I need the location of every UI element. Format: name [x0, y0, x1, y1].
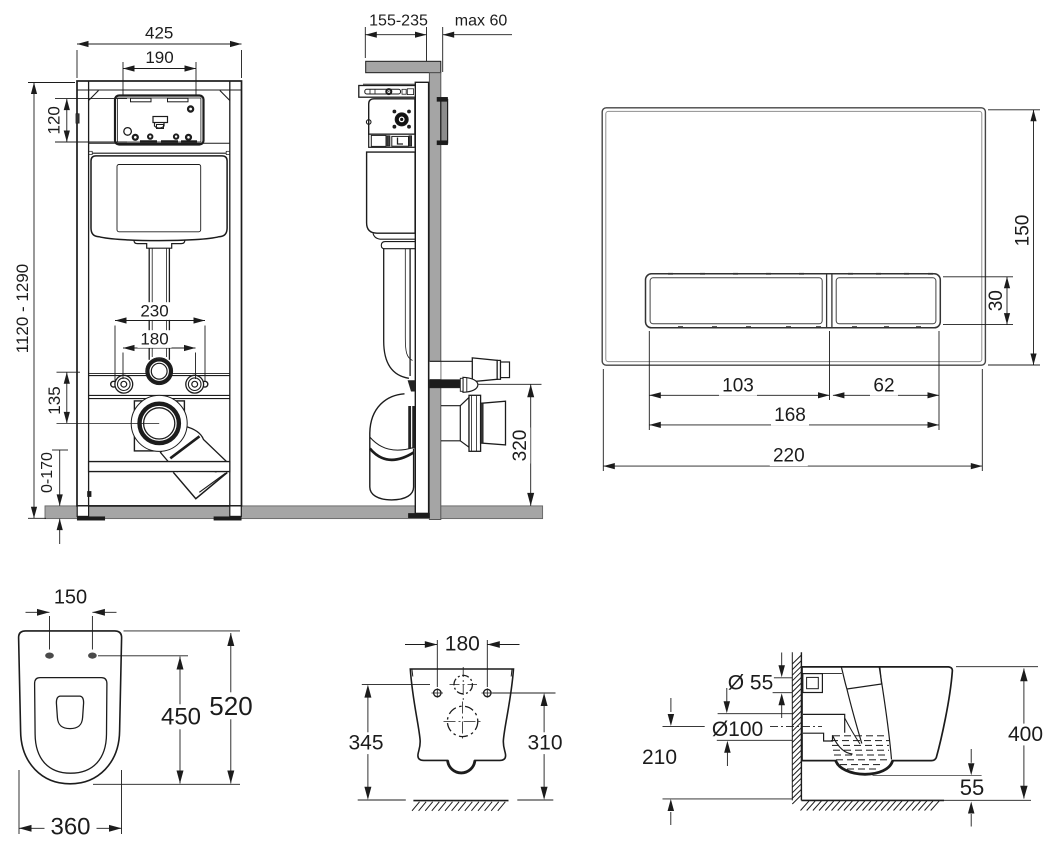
svg-text:210: 210	[642, 746, 677, 769]
svg-text:Ø100: Ø100	[712, 718, 763, 741]
svg-text:120: 120	[45, 106, 64, 134]
svg-text:220: 220	[773, 446, 805, 467]
svg-text:55: 55	[960, 775, 984, 800]
svg-text:180: 180	[140, 330, 168, 349]
svg-text:Ø 55: Ø 55	[728, 671, 774, 694]
svg-text:190: 190	[145, 48, 173, 67]
svg-text:30: 30	[986, 290, 1007, 311]
svg-text:345: 345	[348, 732, 383, 755]
svg-text:310: 310	[527, 732, 562, 755]
svg-text:360: 360	[50, 813, 90, 840]
svg-text:62: 62	[873, 375, 894, 396]
svg-text:400: 400	[1008, 723, 1043, 746]
svg-text:425: 425	[145, 24, 173, 43]
svg-text:168: 168	[774, 405, 806, 426]
svg-text:1120 - 1290: 1120 - 1290	[13, 264, 32, 353]
svg-text:180: 180	[445, 633, 480, 656]
svg-text:max 60: max 60	[455, 13, 508, 30]
svg-text:0-170: 0-170	[39, 452, 56, 493]
svg-text:450: 450	[161, 703, 201, 730]
svg-text:520: 520	[209, 691, 252, 721]
svg-text:320: 320	[510, 430, 531, 462]
svg-text:150: 150	[54, 587, 87, 609]
svg-text:155-235: 155-235	[369, 13, 428, 30]
svg-text:150: 150	[1012, 215, 1033, 247]
svg-text:135: 135	[45, 386, 64, 414]
svg-text:103: 103	[722, 375, 754, 396]
svg-text:230: 230	[140, 302, 168, 321]
